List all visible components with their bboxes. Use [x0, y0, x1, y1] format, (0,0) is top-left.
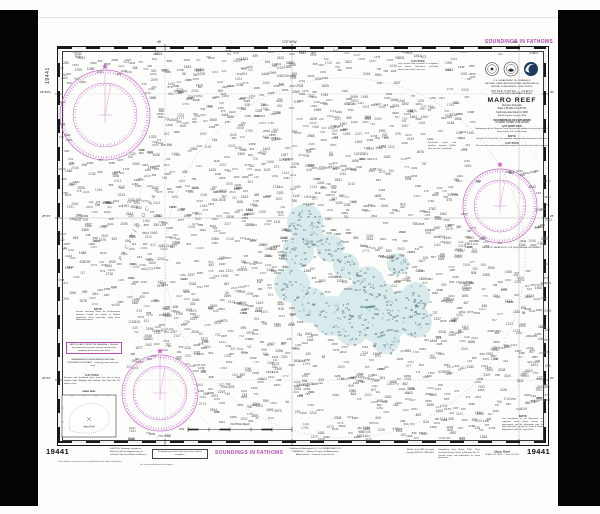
sounding: 2515	[366, 237, 373, 241]
sounding: +	[381, 317, 383, 321]
sounding: 2536	[226, 215, 233, 219]
sounding: 2	[359, 334, 360, 337]
sounding: 1209	[544, 281, 551, 285]
sounding: 2308	[334, 416, 342, 420]
sounding: 758	[335, 65, 340, 69]
sounding: 2424	[252, 332, 258, 336]
sounding: 1560	[302, 374, 309, 378]
sounding: 25	[307, 216, 310, 219]
sounding: 1510	[154, 299, 160, 303]
sounding: 2223	[118, 64, 124, 68]
sounding: 1908	[236, 126, 244, 130]
sounding: 2560	[493, 340, 500, 344]
sounding: 834	[412, 431, 417, 435]
sounding: 970	[544, 276, 549, 280]
sounding: 451	[249, 147, 254, 151]
sounding: 813	[242, 68, 247, 71]
sounding: 660	[260, 341, 265, 344]
sounding: 2691	[467, 236, 474, 240]
sounding: 773	[482, 294, 487, 298]
sounding: 2507	[440, 240, 446, 244]
sounding: 26	[308, 287, 311, 290]
sounding: 33	[364, 272, 367, 275]
sounding: 34	[423, 335, 426, 338]
sounding: 2154	[222, 94, 229, 98]
sounding: 857	[198, 85, 203, 89]
sounding: 20	[394, 330, 397, 333]
sounding: 210	[101, 263, 106, 267]
sounding: 1878	[252, 371, 259, 375]
sounding: 42	[350, 326, 353, 329]
sounding: 2426	[64, 133, 70, 137]
sounding: 728	[253, 157, 258, 161]
sounding: 1337	[461, 418, 468, 422]
sounding: 2072	[100, 251, 107, 255]
sounding: 591	[254, 317, 260, 321]
sounding: 2251	[294, 387, 301, 391]
sounding: 1752	[69, 256, 75, 260]
sounding: 1921	[67, 205, 74, 209]
sounding: 1965	[330, 124, 337, 128]
sounding: 1901	[304, 195, 311, 199]
sounding: 2617	[179, 179, 186, 183]
sounding: 753	[344, 51, 350, 55]
sounding: 2488	[171, 118, 178, 122]
sounding: 1295	[322, 76, 328, 80]
sounding: 19	[316, 226, 319, 229]
sounding: 815	[73, 236, 78, 240]
sounding: 218	[242, 393, 247, 397]
sounding: 2355	[349, 389, 356, 393]
sounding: 429	[305, 352, 310, 356]
sounding: 508	[213, 190, 218, 194]
sounding: 1686	[519, 324, 526, 328]
sounding: 1581	[325, 217, 332, 221]
sounding: 1253	[238, 97, 244, 101]
sounding: 1256	[135, 184, 141, 188]
sounding: 2474	[317, 408, 324, 412]
sounding: 187	[467, 77, 472, 81]
sounding: 1345	[275, 367, 282, 371]
sounding: 4	[392, 349, 393, 352]
sounding: 1642	[361, 208, 368, 212]
sounding: 616	[263, 352, 268, 356]
sounding: 297	[106, 201, 112, 205]
sounding: 6	[285, 296, 286, 299]
sounding: 1745	[488, 426, 495, 430]
sounding: 2433	[419, 347, 426, 351]
sounding: 2457	[379, 367, 386, 371]
sounding: 306	[152, 174, 157, 177]
sounding: 385	[144, 223, 149, 227]
sounding: 2469	[272, 174, 278, 178]
sounding: 1406	[194, 114, 200, 118]
sounding: 1186	[464, 160, 470, 163]
fineprint-1: Chart editions and corrections are publi…	[58, 461, 128, 464]
sounding: 2104	[381, 204, 388, 208]
sounding: 2018	[71, 166, 78, 170]
sounding: 2625	[322, 84, 329, 88]
left-vertical-chart-number: 19441	[45, 54, 51, 84]
sounding: 1130	[163, 312, 170, 316]
sounding: 585	[167, 59, 172, 63]
sounding: 2272	[146, 267, 153, 271]
sounding: 632	[68, 157, 73, 161]
sounding: 1247	[274, 322, 281, 326]
sounding: 9	[412, 315, 413, 318]
sounding: 2552	[543, 338, 550, 342]
sounding: 2340	[342, 90, 348, 93]
sounding: 19	[309, 213, 312, 216]
sounding: 1288	[266, 160, 273, 164]
sounding: 1759	[176, 312, 183, 316]
sounding: 2264	[461, 347, 468, 351]
sounding: 1850	[469, 402, 475, 406]
reef-patch	[396, 339, 400, 343]
sounding: 1003	[477, 412, 484, 416]
sounding: +	[420, 302, 422, 306]
sounding: 577	[312, 197, 318, 201]
sounding: 2370	[343, 240, 349, 244]
sounding: 1236	[343, 203, 350, 207]
sounding: 1744	[492, 348, 499, 352]
sounding: 26	[320, 239, 323, 242]
sounding: 866	[375, 416, 381, 420]
sounding: 1304	[462, 288, 470, 292]
sounding: 1847	[461, 212, 468, 216]
sounding: 1062	[79, 80, 86, 84]
sounding: 1616	[254, 168, 260, 172]
sounding: 1546	[454, 117, 461, 121]
sounding: 1299	[219, 189, 226, 193]
sounding: 1688	[467, 340, 475, 344]
sounding: 322	[219, 383, 225, 387]
sounding: 1792	[428, 200, 434, 203]
sounding: +	[349, 339, 351, 343]
sounding: 93	[227, 52, 231, 56]
sounding: 2157	[224, 222, 231, 226]
sounding: 1210	[128, 320, 135, 324]
sounding: 837	[306, 150, 311, 154]
sounding: 10	[342, 247, 345, 250]
sounding: 1112	[388, 145, 395, 149]
sounding: 826	[447, 428, 453, 432]
sounding: 1125	[118, 278, 124, 282]
sounding: 658	[344, 102, 349, 106]
sounding: 1023	[436, 272, 443, 276]
sounding: 1723	[372, 379, 379, 383]
soundings-field: 2242137920641751511268822032157406126987…	[0, 0, 600, 514]
sounding: 805	[172, 243, 177, 247]
sounding: 2122	[107, 222, 113, 226]
sounding: 2313	[364, 393, 371, 397]
sounding: 1783	[331, 136, 337, 140]
sounding: +	[384, 280, 386, 284]
sounding: 1437	[117, 159, 123, 162]
left-note: NOTE Vessels operating within the Northw…	[76, 308, 120, 322]
sounding: +	[398, 309, 400, 313]
sounding: 1589	[289, 74, 296, 78]
sounding: 1096	[441, 339, 447, 343]
sounding: 2631	[335, 178, 342, 182]
sounding: 1499	[519, 352, 525, 355]
sounding: 244	[498, 52, 503, 56]
sounding: 697	[526, 269, 531, 273]
sounding: 2691	[425, 392, 431, 396]
sounding: 784	[475, 180, 480, 184]
sounding: 2132	[268, 121, 274, 125]
sounding: 2661	[411, 407, 418, 411]
sounding: 2393	[471, 251, 477, 254]
sounding: 96	[182, 72, 186, 76]
sounding: 2356	[132, 299, 140, 303]
sounding: 748	[421, 162, 426, 166]
sounding: 2667	[318, 63, 325, 67]
sounding: +	[287, 246, 289, 250]
sounding: 1151	[415, 102, 422, 106]
sounding: 649	[179, 427, 184, 431]
sounding: 502	[60, 122, 65, 126]
sounding: 2452	[396, 429, 403, 433]
sounding: +	[360, 313, 362, 317]
sounding: 18	[402, 328, 405, 331]
sounding: 2696	[443, 218, 450, 222]
sounding: 30	[344, 335, 347, 338]
sounding: 362	[206, 55, 211, 59]
sounding: 927	[527, 360, 532, 364]
bottom-right-title: Maro Reef NOAA Chart 19441 — Scale 1:85,…	[481, 450, 523, 456]
sounding: 1159	[304, 269, 311, 273]
sounding: 172	[345, 195, 350, 199]
sounding: 759	[511, 397, 516, 401]
sounding: 409	[454, 193, 459, 197]
sounding: 1649	[256, 301, 264, 305]
sounding: 805	[495, 373, 500, 377]
sounding: 18	[319, 314, 322, 317]
sounding: 2628	[392, 111, 399, 115]
sounding: 1359	[245, 114, 251, 118]
sounding: 1196	[199, 395, 206, 399]
sounding: 213	[458, 426, 463, 430]
sounding: 808	[544, 385, 549, 389]
sounding: 1444	[282, 171, 289, 175]
sounding: 1016	[348, 182, 355, 186]
sounding: 977	[470, 260, 475, 264]
sounding: 283	[63, 61, 69, 65]
sounding: 103	[243, 189, 248, 193]
sounding: 544	[454, 101, 459, 105]
sounding: 1284	[480, 435, 487, 439]
sounding: 1107	[535, 386, 541, 390]
sounding: 2253	[425, 399, 432, 403]
sounding: 19	[403, 317, 406, 320]
sounding: 703	[146, 432, 150, 435]
sounding: 2061	[434, 215, 440, 219]
sounding: 819	[360, 244, 365, 248]
sounding: 495	[241, 326, 246, 330]
sounding: 16	[294, 247, 297, 250]
sounding: 33	[395, 320, 398, 323]
reef-patch	[301, 303, 304, 307]
sounding: 916	[185, 363, 190, 366]
sounding: 84	[329, 151, 333, 155]
sounding: 306	[348, 431, 353, 435]
sensitive-area-text: PARTICULARLY SENSITIVE SEA AREA — Marine…	[68, 344, 120, 352]
sounding: 1508	[535, 286, 542, 290]
sounding: 36	[364, 334, 367, 337]
sounding: 274	[416, 370, 421, 374]
sounding: 897	[529, 350, 534, 354]
sounding: 2309	[380, 255, 387, 259]
sounding: 16	[394, 292, 397, 295]
sounding: 2453	[454, 254, 461, 258]
sounding: 2012	[264, 222, 271, 226]
sounding: 2318	[231, 286, 238, 290]
sounding: 1952	[376, 146, 383, 150]
sounding: 2612	[290, 173, 296, 177]
sounding: 44	[379, 352, 382, 355]
sounding: 2178	[146, 313, 153, 317]
sounding: 958	[198, 223, 203, 227]
sounding: 97	[111, 303, 114, 307]
sounding: 591	[194, 259, 199, 263]
sounding: 15	[409, 333, 412, 336]
scale-bar-label: NAUTICAL MILES	[205, 424, 275, 426]
sounding: 2156	[401, 141, 407, 145]
sounding: 2	[294, 227, 295, 230]
sounding: 37	[423, 313, 426, 316]
sounding: 1911	[172, 195, 179, 199]
sounding: 2342	[126, 212, 133, 216]
sounding: 2332	[324, 436, 330, 439]
sounding: 438	[479, 352, 484, 356]
sounding: 2336	[282, 74, 289, 78]
sounding: 2341	[423, 210, 430, 214]
sounding: 271	[463, 147, 468, 151]
sounding: 2423	[277, 56, 284, 60]
sounding: 13	[292, 212, 295, 215]
sounding: 1181	[294, 100, 301, 104]
sounding: 2366	[140, 263, 147, 267]
sounding: +	[319, 218, 321, 222]
sounding: 507	[332, 197, 337, 201]
sounding: 1256	[242, 214, 248, 217]
sounding: 1080	[475, 380, 481, 384]
sounding: 5	[389, 347, 390, 350]
sounding: 1610	[444, 236, 451, 240]
sounding: 1611	[459, 136, 465, 140]
sounding: 25	[344, 256, 347, 259]
sounding: 1732	[518, 278, 525, 282]
sounding: 964	[346, 167, 352, 171]
sounding: 44	[422, 307, 425, 310]
chart-title: MARO REEF	[474, 97, 550, 104]
sounding: 40	[381, 331, 384, 334]
sounding: 1455	[258, 210, 265, 214]
sounding: 1534	[246, 208, 253, 212]
sounding: 2502	[397, 247, 404, 251]
sounding: 1447	[180, 124, 187, 128]
sounding: 2624	[524, 393, 530, 397]
sounding: 688	[212, 97, 217, 100]
sounding: 1716	[146, 337, 153, 341]
sounding: 535	[389, 124, 394, 128]
sounding: 672	[421, 55, 426, 59]
sounding: 25	[363, 289, 366, 292]
sounding: 399	[252, 54, 257, 58]
sounding: +	[302, 289, 304, 293]
sounding: 1392	[245, 223, 252, 227]
sounding: 1999	[269, 71, 276, 75]
right-bottom-note-text: The boundaries of the Monument and regul…	[502, 418, 544, 432]
title-block: U.S. DEPARTMENT OF COMMERCE NATIONAL OCE…	[474, 80, 550, 148]
sounding: 1799	[245, 129, 252, 133]
sounding: 522	[322, 126, 327, 130]
sounding: 1733	[446, 87, 453, 91]
sounding: 9	[314, 324, 315, 327]
sounding: 2078	[79, 299, 86, 303]
sounding: 2005	[193, 77, 199, 81]
sounding: 21	[308, 210, 311, 213]
sounding: 171	[465, 395, 470, 399]
sounding: 772	[404, 165, 409, 169]
sounding: 861	[375, 136, 380, 140]
sounding: +	[305, 293, 307, 297]
sounding: 38	[322, 310, 325, 313]
sounding: 660	[59, 66, 64, 70]
sounding: 1602	[379, 198, 385, 201]
sounding: 510	[278, 307, 284, 311]
sounding: 2124	[533, 297, 540, 301]
sounding: 756	[376, 168, 382, 172]
sounding: 193	[536, 191, 541, 195]
sounding: 6	[337, 272, 338, 275]
sounding: 2447	[180, 277, 186, 281]
sounding: 1567	[433, 226, 440, 230]
left-caution-text: Breakers and discolored water mark the r…	[64, 377, 120, 385]
sounding: 2543	[529, 185, 536, 189]
sounding: 2532	[252, 266, 258, 270]
sounding: 222	[382, 133, 388, 137]
sounding: 2411	[290, 187, 296, 191]
sounding: 1300	[427, 137, 433, 141]
sounding: 818	[192, 118, 197, 121]
sounding: 1341	[299, 51, 306, 55]
sounding: 1064	[317, 203, 324, 207]
sounding: 20	[342, 312, 345, 315]
sounding: 457	[463, 301, 468, 305]
sounding: 851	[209, 351, 214, 355]
sounding: 127	[222, 59, 227, 63]
sounding: 903	[235, 239, 240, 243]
sounding: 139	[276, 378, 281, 382]
sounding: 835	[313, 62, 318, 66]
sounding: 33	[405, 307, 408, 310]
sounding: 872	[410, 422, 415, 426]
sounding: 2658	[227, 115, 234, 119]
sounding: 497	[244, 255, 249, 258]
sounding: 842	[444, 109, 449, 113]
sounding: 38	[350, 288, 353, 291]
sounding: 2568	[307, 134, 314, 138]
sounding: 1185	[455, 131, 462, 135]
sounding: 709	[304, 154, 309, 158]
sounding: 1399	[366, 138, 373, 142]
sounding: 1320	[445, 68, 451, 72]
sounding: 1991	[379, 129, 386, 133]
sounding: 2310	[371, 215, 377, 218]
sounding: 1298	[165, 435, 171, 438]
